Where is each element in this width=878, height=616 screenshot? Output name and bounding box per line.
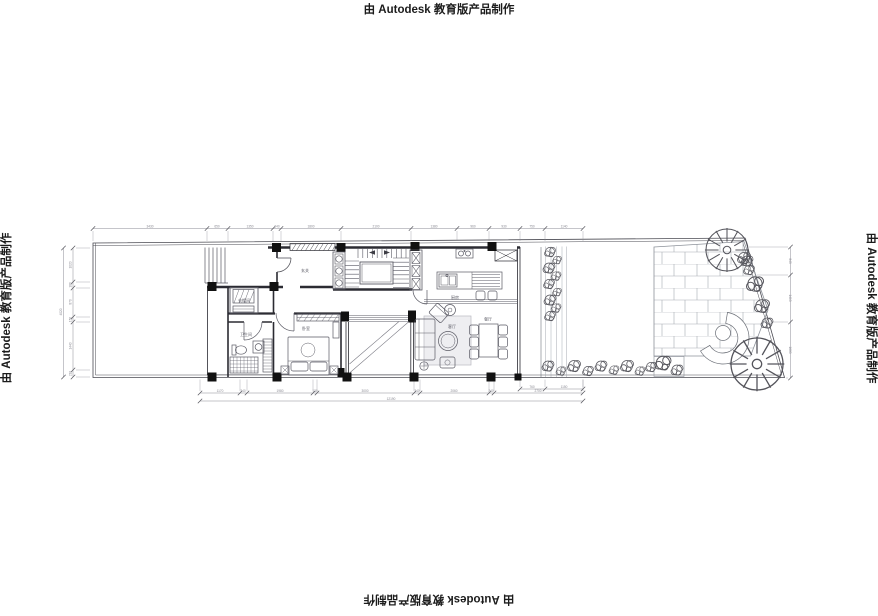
room-label-dining: 餐厅 [484, 316, 492, 322]
void-room [350, 322, 410, 374]
tv-cabinet [333, 322, 339, 338]
bathroom-sink [253, 341, 264, 353]
toilet-bowl [236, 346, 247, 354]
dim-label: 1410 [788, 294, 792, 301]
dim-label: 840 [788, 258, 792, 264]
floor-plan-drawing: 3430 650 1350 240 1800 2100 1380 960 930… [0, 0, 878, 616]
dim-label: 240 [488, 389, 494, 393]
dining-area: 餐厅 [470, 316, 508, 360]
room-label-kitchen: 厨房 [451, 294, 459, 300]
cad-floor-plan-page: 由 Autodesk 教育版产品制作 由 Autodesk 教育版产品制作 由 … [0, 0, 878, 616]
bathroom-door [244, 322, 262, 340]
dim-label: 1170 [217, 389, 224, 393]
dim-label: 12190 [387, 397, 396, 401]
room-label-cloakroom: 衣帽间 [238, 297, 250, 303]
room-label-entry: 玄关 [301, 267, 309, 273]
dim-label: 2060 [450, 389, 457, 393]
dim-label: 180 [69, 282, 73, 288]
dim-label: 750 [529, 225, 535, 229]
dim-label: 240 [274, 225, 280, 229]
dim-label: 1800 [307, 225, 314, 229]
dining-chair [499, 337, 508, 347]
dim-label: 1350 [246, 225, 253, 229]
dim-label: 1440 [69, 342, 73, 349]
pillow [291, 362, 308, 371]
dim-label: 1980 [276, 389, 283, 393]
bar-stool [476, 291, 485, 300]
living-room: 客厅 [415, 303, 471, 370]
dim-label: 650 [214, 225, 220, 229]
stairs [333, 248, 427, 304]
dim-label: 2700 [534, 389, 541, 393]
pillow [310, 362, 327, 371]
bedroom: 卧室 [276, 313, 339, 375]
dim-label: 2100 [372, 225, 379, 229]
dim-label: 760 [529, 385, 535, 389]
linen-shelf [263, 339, 272, 372]
dim-label: 1150 [561, 385, 568, 389]
dim-label: 1020 [69, 261, 73, 268]
dim-label: 960 [470, 225, 476, 229]
entry-hall: 玄关 [277, 258, 309, 273]
dim-label: 1680 [788, 346, 792, 353]
dim-label: 150 [69, 317, 73, 323]
dim-label: 1380 [430, 225, 437, 229]
entry-door [277, 258, 291, 272]
room-label-bedroom: 卧室 [302, 325, 310, 331]
dim-label: 930 [501, 225, 507, 229]
garden [541, 228, 784, 391]
bedroom-door [276, 313, 294, 331]
bed-throw [301, 343, 315, 357]
dim-label: 1140 [561, 225, 568, 229]
dining-chair [499, 325, 508, 335]
dim-label: 4020 [59, 308, 63, 315]
bar-stool [488, 291, 497, 300]
dim-label: 870 [69, 299, 73, 305]
dim-label: 210 [69, 371, 73, 377]
dim-label: 130 [312, 389, 318, 393]
dim-label: 240 [414, 389, 420, 393]
room-label-living: 客厅 [448, 323, 456, 329]
side-table [445, 305, 456, 316]
dim-label: 3430 [146, 225, 153, 229]
dim-label: 3000 [361, 389, 368, 393]
garden-table [716, 326, 731, 341]
dining-table [479, 324, 498, 357]
dim-label: 240 [240, 389, 246, 393]
bed [288, 337, 329, 375]
room-label-bathroom: 卫生间 [240, 331, 252, 337]
dining-chair [499, 349, 508, 359]
bathroom: 卫生间 [230, 322, 272, 373]
kitchen: 厨房 [437, 249, 502, 300]
cloakroom: 衣帽间 [230, 288, 258, 314]
